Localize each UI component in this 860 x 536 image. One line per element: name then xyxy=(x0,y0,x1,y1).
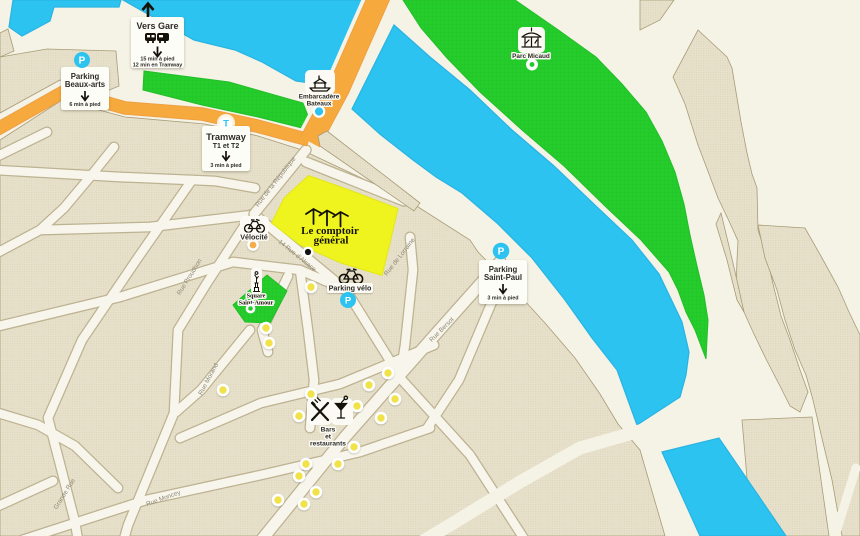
svg-text:Beaux-arts: Beaux-arts xyxy=(65,80,106,89)
svg-text:Embarcadère: Embarcadère xyxy=(299,94,340,101)
svg-text:12 min en Tramway: 12 min en Tramway xyxy=(133,63,182,69)
svg-text:T: T xyxy=(223,119,229,130)
svg-text:Bars: Bars xyxy=(321,427,336,434)
svg-text:Saint-Paul: Saint-Paul xyxy=(484,273,522,282)
svg-text:Vélocité: Vélocité xyxy=(240,233,268,242)
svg-text:P: P xyxy=(345,296,352,307)
svg-text:Vers Gare: Vers Gare xyxy=(136,21,178,31)
svg-text:P: P xyxy=(498,247,505,258)
svg-text:restaurants: restaurants xyxy=(310,441,346,448)
svg-text:général: général xyxy=(314,235,349,247)
svg-text:Saint-Amour: Saint-Amour xyxy=(239,300,274,307)
svg-text:6 min à pied: 6 min à pied xyxy=(69,102,100,108)
svg-text:T1 et T2: T1 et T2 xyxy=(213,143,240,150)
svg-text:et: et xyxy=(325,434,332,441)
svg-text:3 min à pied: 3 min à pied xyxy=(487,296,518,302)
svg-text:Tramway: Tramway xyxy=(206,132,247,142)
svg-text:Square: Square xyxy=(247,293,266,300)
svg-text:Parking vélo: Parking vélo xyxy=(329,284,372,293)
svg-text:P: P xyxy=(79,56,86,67)
svg-text:3 min à pied: 3 min à pied xyxy=(210,163,241,169)
